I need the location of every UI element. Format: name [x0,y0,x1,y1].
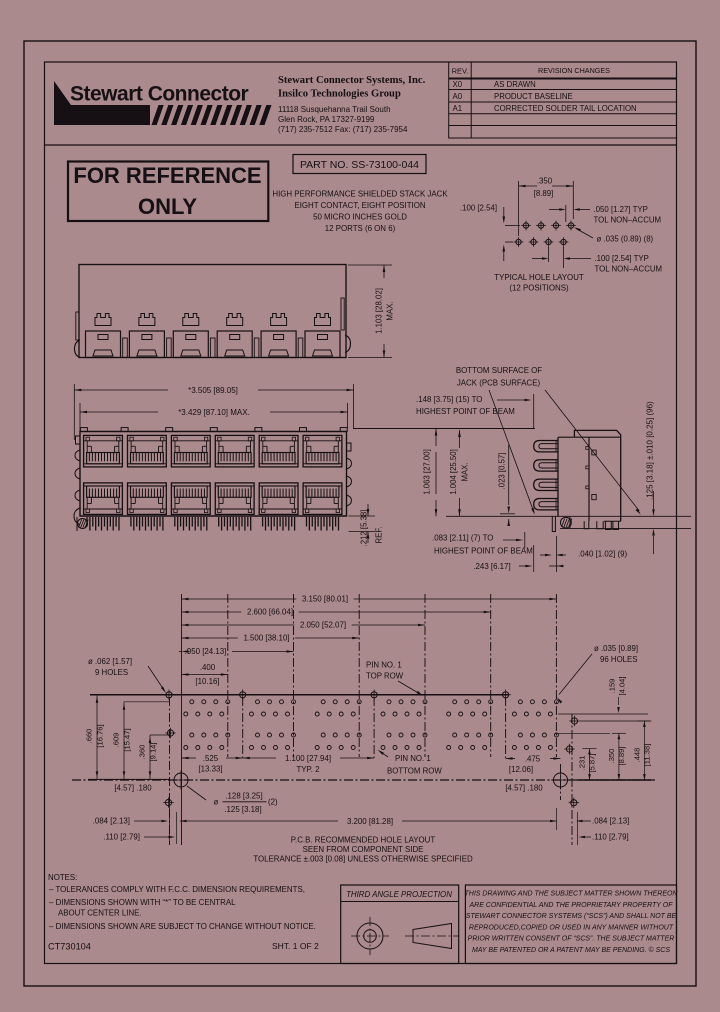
svg-text:3.200 [81.28]: 3.200 [81.28] [347,817,393,826]
svg-text:.040 [1.02] (9): .040 [1.02] (9) [578,550,628,559]
svg-text:2.050 [52.07]: 2.050 [52.07] [300,621,346,630]
svg-text:Stewart Connector: Stewart Connector [70,83,249,106]
svg-text:2.600 [66.04]: 2.600 [66.04] [247,608,293,617]
svg-text:THIS DRAWING AND THE SUBJECT M: THIS DRAWING AND THE SUBJECT MATTER SHOW… [465,891,679,898]
svg-text:TOL NON–ACCUM: TOL NON–ACCUM [594,216,662,225]
svg-text:1.004 [25.50]: 1.004 [25.50] [449,449,458,495]
svg-text:CT730104: CT730104 [48,942,91,952]
svg-text:THIRD ANGLE PROJECTION: THIRD ANGLE PROJECTION [346,890,452,899]
svg-text:ø .035 (0.89) (8): ø .035 (0.89) (8) [597,235,654,244]
svg-text:.350: .350 [537,177,553,186]
svg-text:.525: .525 [203,754,219,763]
svg-text:1.100 [27.94]: 1.100 [27.94] [285,754,331,763]
svg-text:.084 [2.13]: .084 [2.13] [592,817,629,826]
svg-text:[8.89]: [8.89] [617,747,626,766]
svg-text:– DIMENSIONS SHOWN ARE SUBJEC: – DIMENSIONS SHOWN ARE SUBJECT TO CHANGE… [49,922,316,931]
svg-text:EIGHT CONTACT, EIGHT POSITION: EIGHT CONTACT, EIGHT POSITION [294,201,425,210]
svg-text:ABOUT CENTER LINE.: ABOUT CENTER LINE. [58,909,142,918]
svg-text:PIN NO. 1: PIN NO. 1 [395,754,431,763]
svg-text:PART NO. SS-73100-044: PART NO. SS-73100-044 [300,159,419,171]
svg-text:PRODUCT BASELINE: PRODUCT BASELINE [494,92,573,101]
svg-text:AS DRAWN: AS DRAWN [494,80,536,89]
svg-text:96 HOLES: 96 HOLES [600,655,638,664]
svg-text:SHT. 1 OF 2: SHT. 1 OF 2 [272,941,319,951]
svg-text:TYPICAL HOLE LAYOUT: TYPICAL HOLE LAYOUT [494,273,584,282]
svg-text:– TOLERANCES COMPLY WITH F.C.: – TOLERANCES COMPLY WITH F.C.C. DIMENSIO… [49,885,305,894]
svg-text:FOR REFERENCE: FOR REFERENCE [73,163,261,188]
svg-text:TOP ROW: TOP ROW [366,672,404,681]
svg-text:[4.57] .180: [4.57] .180 [114,784,152,793]
svg-text:HIGH PERFORMANCE SHIELDED STAC: HIGH PERFORMANCE SHIELDED STACK JACK [272,190,448,199]
svg-text:[13.33]: [13.33] [198,765,222,774]
svg-text:.083 [2.11] (7) TO: .083 [2.11] (7) TO [432,534,493,543]
svg-text:.159: .159 [608,679,617,694]
svg-text:REF.: REF. [375,527,384,544]
svg-text:.231: .231 [578,756,587,771]
svg-text:.212 [5.38]: .212 [5.38] [360,510,369,547]
svg-text:[4.04]: [4.04] [618,677,627,696]
svg-text:.100 [2.54]: .100 [2.54] [460,204,497,213]
svg-text:MAX.: MAX. [386,301,395,320]
svg-text:– DIMENSIONS SHOWN WITH “*” T: – DIMENSIONS SHOWN WITH “*” TO BE CENTRA… [49,898,236,907]
svg-text:SEEN FROM COMPONENT SIDE: SEEN FROM COMPONENT SIDE [303,845,424,854]
svg-text:JACK (PCB SURFACE): JACK (PCB SURFACE) [457,379,541,388]
svg-text:.350: .350 [607,749,616,764]
svg-text:.243 [6.17]: .243 [6.17] [473,562,510,571]
svg-text:.148 [3.75] (15) TO: .148 [3.75] (15) TO [416,395,482,404]
svg-text:[5.87]: [5.87] [588,754,597,773]
svg-text:(717) 235-7512 Fax: (717) 23: (717) 235-7512 Fax: (717) 235-7954 [278,125,408,134]
svg-text:.609: .609 [112,733,121,748]
svg-text:ø .062 [1.57]: ø .062 [1.57] [88,657,132,666]
svg-text:.475: .475 [525,755,541,764]
svg-text:.125 [3.18]: .125 [3.18] [224,805,261,814]
svg-text:[8.89]: [8.89] [534,189,554,198]
svg-text:P.C.B. RECOMMENDED HOLE LAYOU: P.C.B. RECOMMENDED HOLE LAYOUT [291,836,436,845]
svg-text:NOTES:: NOTES: [48,873,77,882]
svg-text:Glen Rock, PA 17327-9199: Glen Rock, PA 17327-9199 [278,115,375,124]
svg-text:TYP. 2: TYP. 2 [296,765,319,774]
svg-text:.110 [2.79]: .110 [2.79] [592,833,629,842]
svg-text:ø: ø [214,798,219,807]
svg-text:1.063 [27.00]: 1.063 [27.00] [423,449,432,495]
svg-text:.950 [24.13]: .950 [24.13] [185,647,227,656]
svg-text:Insilco Technologies Group: Insilco Technologies Group [278,89,401,100]
svg-text:.660: .660 [85,729,94,744]
svg-text:(12 POSITIONS): (12 POSITIONS) [509,284,569,293]
svg-text:*3.429 [87.10] MAX.: *3.429 [87.10] MAX. [178,408,250,417]
svg-text:TOL NON–ACCUM: TOL NON–ACCUM [595,265,663,274]
svg-text:X0: X0 [453,80,463,89]
svg-text:[10.16]: [10.16] [195,677,219,686]
svg-text:STEWART CONNECTOR SYSTEMS (“SC: STEWART CONNECTOR SYSTEMS (“SCS”) AND SH… [466,913,677,920]
svg-text:PRIOR WRITTEN CONSENT OF “SCS”: PRIOR WRITTEN CONSENT OF “SCS”. THE SUBJ… [468,936,675,943]
svg-text:Stewart Connector Systems, Inc: Stewart Connector Systems, Inc. [278,75,426,86]
svg-text:MAY BE PATENTED OR A PATENT MA: MAY BE PATENTED OR A PATENT MAY BE PENDI… [472,946,670,954]
svg-text:ONLY: ONLY [138,194,197,219]
svg-text:3.150 [80.01]: 3.150 [80.01] [302,595,348,604]
svg-text:A0: A0 [453,92,463,101]
svg-text:TOLERANCE ±.003 [0.08] UNLESS: TOLERANCE ±.003 [0.08] UNLESS OTHERWISE … [253,855,473,864]
svg-text:HIGHEST POINT OF BEAM: HIGHEST POINT OF BEAM [416,407,515,416]
svg-text:.050 [1.27] TYP: .050 [1.27] TYP [594,205,648,214]
svg-text:.125 [3.18] ±.010 [0.25] (96): .125 [3.18] ±.010 [0.25] (96) [646,401,655,500]
svg-text:.128 [3.25]: .128 [3.25] [225,792,262,801]
svg-text:.110 [2.79]: .110 [2.79] [103,833,140,842]
svg-text:REPRODUCED,COPIED OR USED IN A: REPRODUCED,COPIED OR USED IN ANY MANNER … [469,924,674,931]
svg-text:11118 Susquehanna Trail South: 11118 Susquehanna Trail South [278,105,391,114]
svg-text:REVISION CHANGES: REVISION CHANGES [538,66,610,75]
svg-text:.400: .400 [200,663,216,672]
svg-text:REV.: REV. [452,67,469,76]
svg-text:1.500 [38.10]: 1.500 [38.10] [243,634,289,643]
svg-text:.448: .448 [632,748,641,763]
svg-text:*3.505 [89.05]: *3.505 [89.05] [188,386,238,395]
svg-text:[12.06]: [12.06] [509,765,533,774]
svg-text:.360: .360 [138,745,147,760]
svg-text:BOTTOM SURFACE OF: BOTTOM SURFACE OF [456,366,542,375]
svg-text:CORRECTED SOLDER TAIL LOCATION: CORRECTED SOLDER TAIL LOCATION [494,104,637,113]
svg-text:HIGHEST POINT OF BEAM: HIGHEST POINT OF BEAM [434,547,533,556]
svg-text:BOTTOM ROW: BOTTOM ROW [387,767,442,776]
svg-text:A1: A1 [453,104,463,113]
svg-text:9 HOLES: 9 HOLES [95,668,128,677]
svg-text:ø .035 [0.89]: ø .035 [0.89] [594,644,638,653]
svg-text:1.103 [28.02]: 1.103 [28.02] [375,288,384,334]
svg-text:.023 [0.57]: .023 [0.57] [498,453,507,490]
svg-text:.084 [2.13]: .084 [2.13] [93,817,130,826]
svg-text:MAX.: MAX. [461,462,470,481]
svg-text:(2): (2) [268,798,278,807]
svg-text:[11.38]: [11.38] [643,744,652,767]
svg-text:.100 [2.54] TYP: .100 [2.54] TYP [595,254,649,263]
svg-text:50 MICRO INCHES GOLD: 50 MICRO INCHES GOLD [313,213,407,222]
svg-text:ARE CONFIDENTIAL AND THE PROPR: ARE CONFIDENTIAL AND THE PROPRIETARY PRO… [468,902,673,909]
svg-text:[4.57] .180: [4.57] .180 [505,784,543,793]
svg-text:12 PORTS (6 ON 6): 12 PORTS (6 ON 6) [325,224,396,233]
svg-text:PIN NO. 1: PIN NO. 1 [366,661,402,670]
